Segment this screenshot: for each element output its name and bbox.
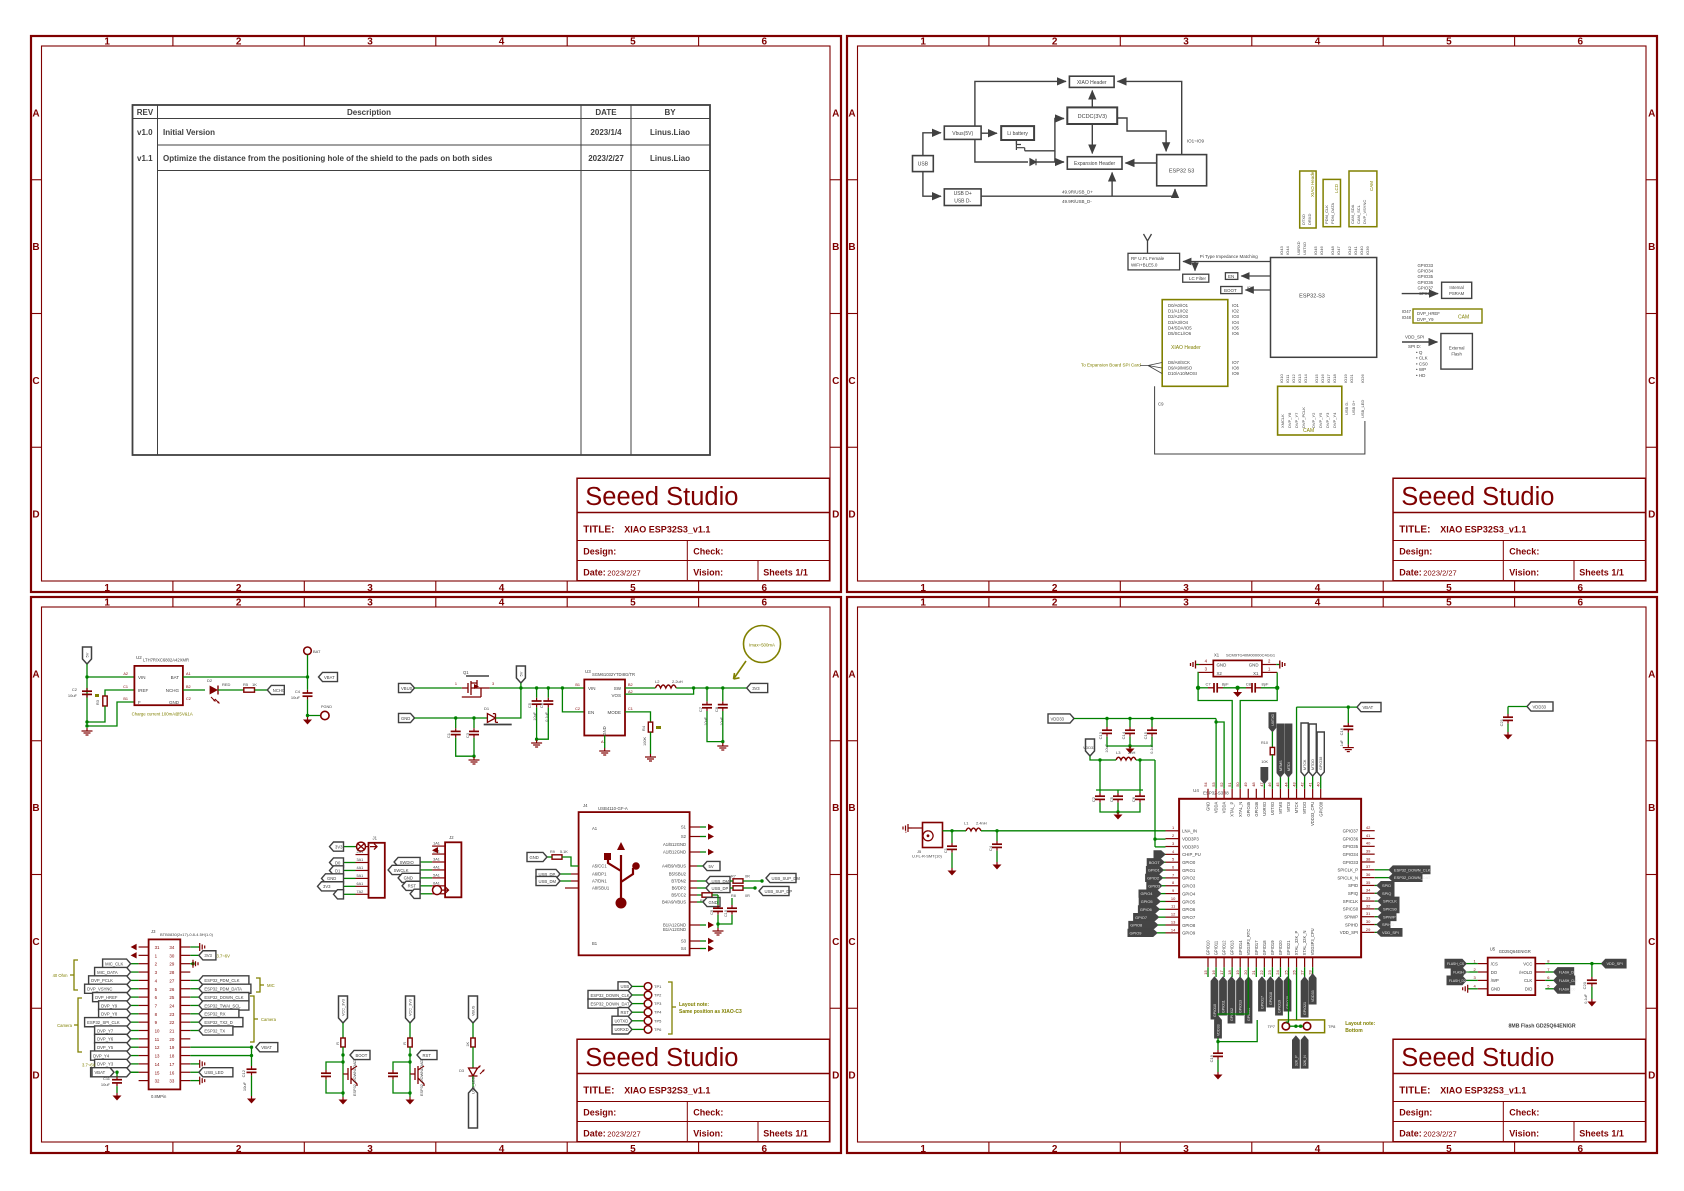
svg-text:GPIO12: GPIO12 bbox=[1222, 940, 1227, 956]
svg-text:USB_DP: USB_DP bbox=[712, 886, 729, 891]
svg-text:BOOT: BOOT bbox=[1149, 860, 1161, 865]
svg-text:VOS: VOS bbox=[611, 693, 621, 698]
svg-text:DVP_HREF: DVP_HREF bbox=[95, 995, 118, 1000]
svg-text:C4: C4 bbox=[988, 845, 993, 851]
svg-text:VDDA: VDDA bbox=[1214, 802, 1219, 814]
svg-text:SGM61032YTDI8G/TR: SGM61032YTDI8G/TR bbox=[592, 672, 635, 677]
svg-text:GPIO1: GPIO1 bbox=[1182, 868, 1196, 873]
svg-text:45: 45 bbox=[1275, 782, 1280, 787]
svg-text:FLASH_D0: FLASH_D0 bbox=[1559, 987, 1576, 991]
svg-text:A8/SBU1: A8/SBU1 bbox=[592, 886, 610, 891]
svg-text:GPIO17: GPIO17 bbox=[1260, 996, 1264, 1009]
svg-text:GPIO0: GPIO0 bbox=[1182, 860, 1196, 865]
svg-text:Internal: Internal bbox=[1449, 285, 1463, 290]
svg-text:MIC_DATA: MIC_DATA bbox=[97, 970, 118, 975]
svg-text:IO14: IO14 bbox=[1303, 374, 1308, 383]
svg-text:U0RXD: U0RXD bbox=[615, 1027, 629, 1032]
svg-text:S2: S2 bbox=[681, 834, 687, 839]
svg-text:10K: 10K bbox=[1261, 760, 1268, 764]
svg-text:C10: C10 bbox=[724, 910, 728, 917]
svg-text:TP1: TP1 bbox=[654, 984, 662, 989]
svg-text:GPIO5: GPIO5 bbox=[1141, 899, 1153, 904]
svg-text:S4: S4 bbox=[681, 946, 687, 951]
svg-text:3A1: 3A1 bbox=[357, 858, 364, 862]
svg-text:54: 54 bbox=[1203, 782, 1208, 787]
svg-text:USB_SUP_DM: USB_SUP_DM bbox=[772, 876, 801, 881]
svg-text:LCD: LCD bbox=[1334, 183, 1339, 193]
svg-text:ESP32 S3: ESP32 S3 bbox=[1169, 168, 1194, 174]
svg-text:39: 39 bbox=[1366, 849, 1371, 854]
svg-text:GPIO8: GPIO8 bbox=[1182, 923, 1196, 928]
svg-text:10uF: 10uF bbox=[242, 1081, 247, 1091]
svg-text:CAM: CAM bbox=[1303, 428, 1314, 434]
svg-text:VDD3P3_CPU: VDD3P3_CPU bbox=[1310, 928, 1315, 955]
svg-text:GND: GND bbox=[709, 900, 718, 905]
svg-text:• Q: • Q bbox=[1416, 350, 1423, 355]
svg-text:ESP32_PDM_DATA: ESP32_PDM_DATA bbox=[204, 987, 242, 992]
svg-text:SPI D:: SPI D: bbox=[1408, 344, 1421, 349]
svg-text:1: 1 bbox=[1172, 825, 1175, 830]
svg-text:TP7: TP7 bbox=[1268, 1024, 1276, 1029]
svg-text:GPIO9: GPIO9 bbox=[1182, 931, 1196, 936]
svg-text:GPIO6: GPIO6 bbox=[1182, 907, 1196, 912]
svg-text:5V: 5V bbox=[85, 652, 90, 657]
svg-text:A1/B12GND: A1/B12GND bbox=[663, 842, 686, 847]
svg-text:29: 29 bbox=[169, 962, 174, 967]
svg-text:10uF: 10uF bbox=[101, 1082, 111, 1087]
svg-text:GPIO10: GPIO10 bbox=[1213, 1004, 1217, 1017]
svg-text:GPIO13: GPIO13 bbox=[1230, 940, 1235, 956]
svg-text:J4: J4 bbox=[583, 803, 588, 808]
svg-text:33: 33 bbox=[169, 1079, 174, 1084]
svg-text:10: 10 bbox=[155, 1029, 160, 1034]
svg-text:38: 38 bbox=[1366, 856, 1371, 861]
svg-text:2023/2/27: 2023/2/27 bbox=[588, 154, 624, 163]
svg-text:DATE: DATE bbox=[595, 108, 617, 117]
svg-text:VDD_SPI: VDD_SPI bbox=[1405, 335, 1424, 340]
svg-text:21: 21 bbox=[1251, 970, 1256, 975]
svg-text:FLASH_D1: FLASH_D1 bbox=[1453, 971, 1470, 975]
svg-text:1A1: 1A1 bbox=[433, 842, 440, 846]
svg-text:GPIO2: GPIO2 bbox=[1147, 876, 1159, 881]
svg-text:VCC: VCC bbox=[1523, 961, 1532, 966]
svg-text:SPID: SPID bbox=[1382, 883, 1391, 888]
svg-text:VDD_SPI: VDD_SPI bbox=[1382, 930, 1399, 935]
svg-text:VCC_3V3: VCC_3V3 bbox=[342, 999, 346, 1016]
svg-text:1: 1 bbox=[1268, 667, 1271, 672]
svg-text:FLASH_CS: FLASH_CS bbox=[1447, 962, 1465, 966]
svg-text:PGND: PGND bbox=[321, 705, 332, 709]
svg-text:8MB Flash GD25Q64ENIGR: 8MB Flash GD25Q64ENIGR bbox=[1509, 1024, 1576, 1030]
svg-text:GPIO1: GPIO1 bbox=[1148, 868, 1160, 873]
svg-text:LNA_IN: LNA_IN bbox=[1182, 829, 1197, 834]
svg-text:LC Filter: LC Filter bbox=[1189, 276, 1207, 281]
svg-text:B2: B2 bbox=[628, 683, 633, 687]
svg-text:24: 24 bbox=[1275, 970, 1280, 975]
svg-text:19: 19 bbox=[1235, 970, 1240, 975]
svg-text:D5/SCL/IO6: D5/SCL/IO6 bbox=[1168, 331, 1192, 336]
svg-text:5V: 5V bbox=[709, 864, 714, 869]
svg-text:D1: D1 bbox=[335, 868, 341, 873]
svg-text:XTAL_N: XTAL_N bbox=[1238, 802, 1243, 817]
svg-text:• CLK: • CLK bbox=[1416, 356, 1428, 361]
svg-text:DVP_Y3: DVP_Y3 bbox=[97, 1062, 114, 1067]
svg-text:B4/A9/VBUS: B4/A9/VBUS bbox=[662, 900, 686, 905]
svg-text:TP6: TP6 bbox=[654, 1027, 662, 1032]
svg-text:A4/B9/VBUS: A4/B9/VBUS bbox=[662, 864, 686, 869]
svg-text:CAM: CAM bbox=[1458, 315, 1469, 321]
svg-text:DVP_Y9: DVP_Y9 bbox=[1417, 317, 1434, 322]
svg-text:/WP: /WP bbox=[1491, 978, 1499, 983]
svg-text:D0/A0/IO1: D0/A0/IO1 bbox=[1168, 303, 1189, 308]
svg-text:34: 34 bbox=[1366, 888, 1371, 893]
svg-text:4A1: 4A1 bbox=[433, 865, 440, 869]
svg-text:MTMS: MTMS bbox=[1279, 760, 1283, 771]
svg-text:DID: DID bbox=[1525, 987, 1532, 992]
svg-text:C16: C16 bbox=[1339, 727, 1344, 735]
svg-text:IO47: IO47 bbox=[1336, 246, 1341, 255]
svg-text:15: 15 bbox=[1203, 970, 1208, 975]
svg-text:C9: C9 bbox=[1158, 402, 1164, 407]
svg-text:GPIO11: GPIO11 bbox=[1214, 940, 1219, 955]
svg-text:VDD_SPI: VDD_SPI bbox=[1607, 962, 1623, 966]
svg-text:49.9R/USB_D+: 49.9R/USB_D+ bbox=[1062, 189, 1093, 194]
svg-text:C5: C5 bbox=[1109, 796, 1114, 802]
svg-text:IREF: IREF bbox=[138, 688, 149, 693]
svg-text:ESP32-S3: ESP32-S3 bbox=[1299, 294, 1325, 300]
svg-text:GPIO33: GPIO33 bbox=[1417, 263, 1433, 268]
svg-text:RST: RST bbox=[621, 1010, 630, 1015]
svg-text:DRXD: DRXD bbox=[1307, 214, 1312, 225]
svg-text:D9/A9/MISO: D9/A9/MISO bbox=[1168, 366, 1193, 371]
svg-text:A1: A1 bbox=[186, 672, 191, 676]
svg-text:SPICS0: SPICS0 bbox=[1343, 907, 1359, 912]
svg-text:Layout note:: Layout note: bbox=[679, 1002, 709, 1008]
svg-text:3V3: 3V3 bbox=[204, 953, 212, 958]
svg-text:35: 35 bbox=[1366, 880, 1371, 885]
svg-text:IO4: IO4 bbox=[1232, 320, 1240, 325]
svg-text:GPIO37: GPIO37 bbox=[1343, 829, 1359, 834]
svg-text:GND: GND bbox=[1491, 987, 1501, 992]
svg-text:D0: D0 bbox=[335, 860, 341, 865]
svg-text:v1.1: v1.1 bbox=[137, 154, 153, 163]
svg-text:3: 3 bbox=[492, 682, 494, 686]
svg-text:A7/DN1: A7/DN1 bbox=[592, 879, 607, 884]
svg-text:GPIO3: GPIO3 bbox=[1148, 883, 1160, 888]
svg-text:ESP32_DOWN_CLK: ESP32_DOWN_CLK bbox=[204, 995, 243, 1000]
svg-text:IO43: IO43 bbox=[1279, 246, 1284, 255]
svg-text:GND: GND bbox=[1249, 663, 1259, 668]
svg-text:GPIO34: GPIO34 bbox=[1417, 269, 1433, 274]
svg-text:PDM_CLK: PDM_CLK bbox=[1324, 205, 1329, 224]
svg-text:R3: R3 bbox=[95, 699, 100, 705]
svg-text:U0TXD: U0TXD bbox=[615, 1019, 629, 1024]
svg-text:BOOT: BOOT bbox=[356, 1053, 368, 1058]
svg-text:A1: A1 bbox=[592, 826, 598, 831]
svg-text:Linus.Liao: Linus.Liao bbox=[650, 128, 690, 137]
svg-text:WiFi+BLE5.0: WiFi+BLE5.0 bbox=[1131, 262, 1158, 267]
svg-text:0R: 0R bbox=[745, 875, 750, 879]
svg-text:F: F bbox=[138, 700, 141, 705]
svg-text:Optimize the distance from the: Optimize the distance from the positioni… bbox=[163, 154, 493, 163]
svg-text:C9: C9 bbox=[710, 910, 714, 915]
svg-text:A2: A2 bbox=[123, 672, 128, 676]
svg-text:8: 8 bbox=[1172, 880, 1175, 885]
svg-text:IO6: IO6 bbox=[1232, 331, 1240, 336]
svg-text:USB_DM: USB_DM bbox=[539, 879, 557, 884]
svg-text:C3: C3 bbox=[465, 732, 470, 738]
svg-text:BOOT: BOOT bbox=[1224, 288, 1237, 293]
svg-text:GPIO38: GPIO38 bbox=[1318, 801, 1323, 817]
svg-text:SPID: SPID bbox=[1348, 883, 1358, 888]
svg-text:C2: C2 bbox=[575, 707, 580, 711]
svg-text:32: 32 bbox=[1366, 903, 1371, 908]
svg-text:USB: USB bbox=[621, 984, 630, 989]
svg-text:B5/CC2: B5/CC2 bbox=[671, 893, 686, 898]
svg-text:DVP_HREF: DVP_HREF bbox=[1417, 311, 1440, 316]
svg-text:L3: L3 bbox=[1116, 750, 1121, 755]
svg-text:Layout note:: Layout note: bbox=[1345, 1021, 1375, 1027]
svg-text:GPIO3: GPIO3 bbox=[1182, 884, 1196, 889]
svg-text:GND: GND bbox=[530, 855, 539, 860]
svg-text:XMCLK: XMCLK bbox=[1280, 414, 1285, 428]
svg-text:SW: SW bbox=[614, 686, 622, 691]
svg-text:ESP32_DOWN_CLK: ESP32_DOWN_CLK bbox=[1394, 867, 1431, 872]
svg-text:U0TXD: U0TXD bbox=[1271, 714, 1275, 726]
svg-text:NCHG: NCHG bbox=[166, 688, 180, 693]
svg-text:External: External bbox=[1449, 346, 1465, 351]
svg-text:10uF: 10uF bbox=[291, 695, 301, 700]
svg-text:J2: J2 bbox=[449, 835, 454, 840]
svg-text:Bottom: Bottom bbox=[1345, 1028, 1363, 1034]
svg-text:SPIHD: SPIHD bbox=[1345, 922, 1358, 927]
svg-text:USB4110-GF-A: USB4110-GF-A bbox=[598, 806, 628, 811]
svg-text:VDD3P3_RTC: VDD3P3_RTC bbox=[1246, 929, 1251, 956]
svg-text:DVP_Y4: DVP_Y4 bbox=[1332, 412, 1337, 428]
svg-text:/CS: /CS bbox=[1491, 961, 1498, 966]
svg-text:D2: D2 bbox=[207, 678, 213, 683]
svg-text:GPIO36: GPIO36 bbox=[1417, 280, 1433, 285]
svg-text:51: 51 bbox=[1227, 782, 1232, 787]
svg-text:GPIO36: GPIO36 bbox=[1343, 836, 1359, 841]
svg-text:53: 53 bbox=[1211, 782, 1216, 787]
svg-text:A6/DP1: A6/DP1 bbox=[592, 872, 607, 877]
svg-text:GPIO37: GPIO37 bbox=[1417, 285, 1433, 290]
svg-text:50: 50 bbox=[1235, 782, 1240, 787]
svg-text:USB_LED: USB_LED bbox=[472, 1076, 476, 1094]
svg-text:IO45: IO45 bbox=[1313, 246, 1318, 255]
svg-text:VBAT: VBAT bbox=[261, 1045, 272, 1050]
svg-text:DCDC(3V3): DCDC(3V3) bbox=[1078, 114, 1108, 120]
svg-text:IO21: IO21 bbox=[1349, 374, 1354, 383]
svg-text:31: 31 bbox=[1366, 911, 1371, 916]
svg-text:A2: A2 bbox=[628, 690, 633, 694]
svg-text:GPIO19: GPIO19 bbox=[1270, 940, 1275, 956]
svg-text:IO15: IO15 bbox=[1314, 374, 1319, 383]
svg-text:C21: C21 bbox=[1499, 718, 1504, 726]
svg-text:RST: RST bbox=[423, 1053, 432, 1058]
svg-text:GPIO21: GPIO21 bbox=[1303, 1002, 1307, 1015]
svg-text:CAM_SCL: CAM_SCL bbox=[1356, 204, 1361, 224]
svg-text:41: 41 bbox=[1366, 833, 1371, 838]
svg-text:3A1: 3A1 bbox=[433, 858, 440, 862]
svg-text:VDD33: VDD33 bbox=[1051, 716, 1065, 721]
svg-text:14: 14 bbox=[155, 1062, 160, 1067]
svg-text:ESP32_TWAI_SCL: ESP32_TWAI_SCL bbox=[204, 1003, 241, 1008]
svg-text:12: 12 bbox=[1171, 912, 1176, 917]
svg-text:IO18: IO18 bbox=[1332, 374, 1337, 383]
svg-text:8pF: 8pF bbox=[1222, 681, 1229, 686]
svg-text:VDD33: VDD33 bbox=[1533, 704, 1547, 709]
svg-text:ESP32_SPI_CLK: ESP32_SPI_CLK bbox=[87, 1020, 120, 1025]
svg-text:8pF: 8pF bbox=[1262, 681, 1269, 686]
svg-text:XIAO Header: XIAO Header bbox=[1310, 170, 1315, 197]
svg-text:PSRAM: PSRAM bbox=[1449, 291, 1465, 296]
svg-text:4: 4 bbox=[1172, 849, 1175, 854]
svg-text:2023/1/4: 2023/1/4 bbox=[590, 128, 622, 137]
svg-text:EN: EN bbox=[1228, 274, 1234, 279]
svg-text:IO19: IO19 bbox=[1343, 374, 1348, 383]
svg-text:23: 23 bbox=[169, 1012, 174, 1017]
svg-text:IO17: IO17 bbox=[1326, 374, 1331, 383]
svg-text:GND: GND bbox=[404, 876, 413, 881]
svg-text:13: 13 bbox=[1171, 919, 1176, 924]
svg-text:28: 28 bbox=[169, 970, 174, 975]
svg-text:U2: U2 bbox=[136, 655, 142, 660]
svg-text:Li battery: Li battery bbox=[1007, 131, 1028, 137]
svg-text:DVP_Y3: DVP_Y3 bbox=[1325, 412, 1330, 428]
svg-text:Initial Version: Initial Version bbox=[163, 128, 215, 137]
svg-text:20: 20 bbox=[169, 1037, 174, 1042]
svg-text:22: 22 bbox=[169, 1020, 174, 1025]
svg-text:VDD3P3: VDD3P3 bbox=[1182, 836, 1199, 841]
svg-text:IO47: IO47 bbox=[1402, 309, 1412, 314]
svg-text:GPIO18: GPIO18 bbox=[1262, 940, 1267, 956]
svg-text:C8: C8 bbox=[714, 706, 719, 712]
svg-text:IO12: IO12 bbox=[1291, 374, 1296, 383]
svg-text:33: 33 bbox=[1366, 895, 1371, 900]
svg-text:C19: C19 bbox=[1209, 1054, 1214, 1062]
svg-text:GPIO33: GPIO33 bbox=[1343, 860, 1359, 865]
svg-text:IO3: IO3 bbox=[1232, 314, 1240, 319]
svg-text:31: 31 bbox=[155, 945, 160, 950]
svg-text:C6: C6 bbox=[539, 702, 544, 708]
svg-text:SPICLK_N: SPICLK_N bbox=[1337, 875, 1358, 880]
svg-text:Linus.Liao: Linus.Liao bbox=[650, 154, 690, 163]
svg-text:TP4: TP4 bbox=[654, 1010, 662, 1015]
svg-text:ESP32_DOWN_DAT: ESP32_DOWN_DAT bbox=[591, 1001, 630, 1006]
svg-text:2.2uH: 2.2uH bbox=[672, 679, 683, 684]
svg-text:X2: X2 bbox=[1217, 671, 1223, 676]
svg-text:Same position as XIAO-C3: Same position as XIAO-C3 bbox=[679, 1009, 742, 1015]
svg-text:GPIO21: GPIO21 bbox=[1286, 940, 1291, 956]
svg-text:DVP_Y7: DVP_Y7 bbox=[97, 1028, 114, 1033]
svg-text:BAT: BAT bbox=[171, 675, 180, 680]
svg-text:GPIO2: GPIO2 bbox=[1182, 876, 1196, 881]
svg-text:XIAO Header: XIAO Header bbox=[1171, 345, 1201, 351]
svg-text:IO10: IO10 bbox=[1279, 374, 1284, 383]
svg-text:IO46: IO46 bbox=[1319, 246, 1324, 255]
svg-text:SWCLK: SWCLK bbox=[394, 868, 409, 873]
svg-text:Expansion Header: Expansion Header bbox=[1074, 161, 1115, 167]
svg-text:CLK: CLK bbox=[1524, 978, 1532, 983]
svg-text:7: 7 bbox=[1547, 967, 1550, 972]
svg-text:SPIHD: SPIHD bbox=[1382, 922, 1394, 927]
svg-text:C1: C1 bbox=[123, 685, 128, 689]
svg-text:36: 36 bbox=[1366, 872, 1371, 877]
svg-text:5A1: 5A1 bbox=[433, 873, 440, 877]
svg-text:RF U.FL Female: RF U.FL Female bbox=[1131, 256, 1165, 261]
svg-text:IO11: IO11 bbox=[1285, 374, 1290, 383]
svg-text:D1/A1/IO2: D1/A1/IO2 bbox=[1168, 309, 1189, 314]
svg-text:R4: R4 bbox=[641, 725, 646, 731]
svg-text:MIC: MIC bbox=[267, 983, 275, 988]
svg-text:D1: D1 bbox=[484, 706, 490, 711]
svg-text:12: 12 bbox=[155, 1045, 160, 1050]
svg-text:5.1K: 5.1K bbox=[560, 850, 568, 854]
svg-text:USB_LED: USB_LED bbox=[204, 1070, 223, 1075]
svg-text:GND: GND bbox=[327, 876, 336, 881]
svg-text:IO2: IO2 bbox=[1232, 309, 1240, 314]
svg-text:VBAT: VBAT bbox=[324, 675, 335, 680]
svg-text:SWDIO: SWDIO bbox=[400, 860, 415, 865]
svg-text:VDD3P3: VDD3P3 bbox=[1182, 844, 1199, 849]
svg-text:D8/A8/SCK: D8/A8/SCK bbox=[1168, 360, 1190, 365]
svg-text:6A1: 6A1 bbox=[433, 881, 440, 885]
svg-text:MTDI: MTDI bbox=[1286, 802, 1291, 812]
svg-text:IO26: IO26 bbox=[1360, 374, 1365, 383]
svg-text:DVP_Y7: DVP_Y7 bbox=[1294, 412, 1299, 428]
svg-text:• CS0: • CS0 bbox=[1416, 361, 1428, 366]
svg-text:FLASH_CLK: FLASH_CLK bbox=[1559, 979, 1579, 983]
svg-text:C2: C2 bbox=[72, 687, 78, 692]
svg-text:29: 29 bbox=[1366, 927, 1371, 932]
svg-text:RED: RED bbox=[222, 682, 231, 687]
svg-text:CAM: CAM bbox=[1369, 181, 1374, 191]
svg-text:32K_P: 32K_P bbox=[1294, 1055, 1298, 1066]
svg-text:ESP32_TX: ESP32_TX bbox=[204, 1028, 225, 1033]
svg-text:IO42: IO42 bbox=[1347, 246, 1352, 255]
svg-text:DVP_PCLK: DVP_PCLK bbox=[91, 978, 113, 983]
svg-text:B1: B1 bbox=[575, 683, 580, 687]
svg-text:0.1uF: 0.1uF bbox=[1584, 993, 1588, 1003]
svg-text:0.8MPin: 0.8MPin bbox=[151, 1094, 167, 1099]
svg-text:3.7~6V: 3.7~6V bbox=[82, 1063, 96, 1068]
svg-text:VIN: VIN bbox=[138, 675, 146, 680]
svg-text:46: 46 bbox=[1267, 782, 1272, 787]
svg-text:ESP32_TX2_D: ESP32_TX2_D bbox=[204, 1020, 232, 1025]
svg-text:TP2: TP2 bbox=[654, 993, 662, 998]
svg-text:27: 27 bbox=[1299, 970, 1304, 975]
svg-text:14: 14 bbox=[1171, 927, 1176, 932]
svg-text:3.7~6V: 3.7~6V bbox=[217, 953, 231, 958]
svg-text:U0TXD: U0TXD bbox=[1302, 242, 1307, 255]
svg-text:TP8: TP8 bbox=[1328, 1024, 1336, 1029]
svg-text:B1/A12GND: B1/A12GND bbox=[663, 927, 686, 932]
svg-text:C1: C1 bbox=[628, 707, 633, 711]
svg-text:VBAT: VBAT bbox=[95, 1070, 106, 1075]
svg-text:DVP_Y8: DVP_Y8 bbox=[1287, 412, 1292, 428]
svg-text:BAT: BAT bbox=[313, 649, 321, 654]
svg-text:VCC_3V3: VCC_3V3 bbox=[409, 999, 413, 1016]
svg-text:8: 8 bbox=[1547, 958, 1550, 963]
svg-text:6A1: 6A1 bbox=[357, 882, 364, 886]
svg-text:GPIO9: GPIO9 bbox=[1130, 930, 1142, 935]
svg-text:B1: B1 bbox=[592, 941, 598, 946]
svg-text:GPIO4: GPIO4 bbox=[1141, 891, 1154, 896]
svg-text:IO16: IO16 bbox=[1320, 374, 1325, 383]
svg-text:EN: EN bbox=[588, 710, 594, 715]
